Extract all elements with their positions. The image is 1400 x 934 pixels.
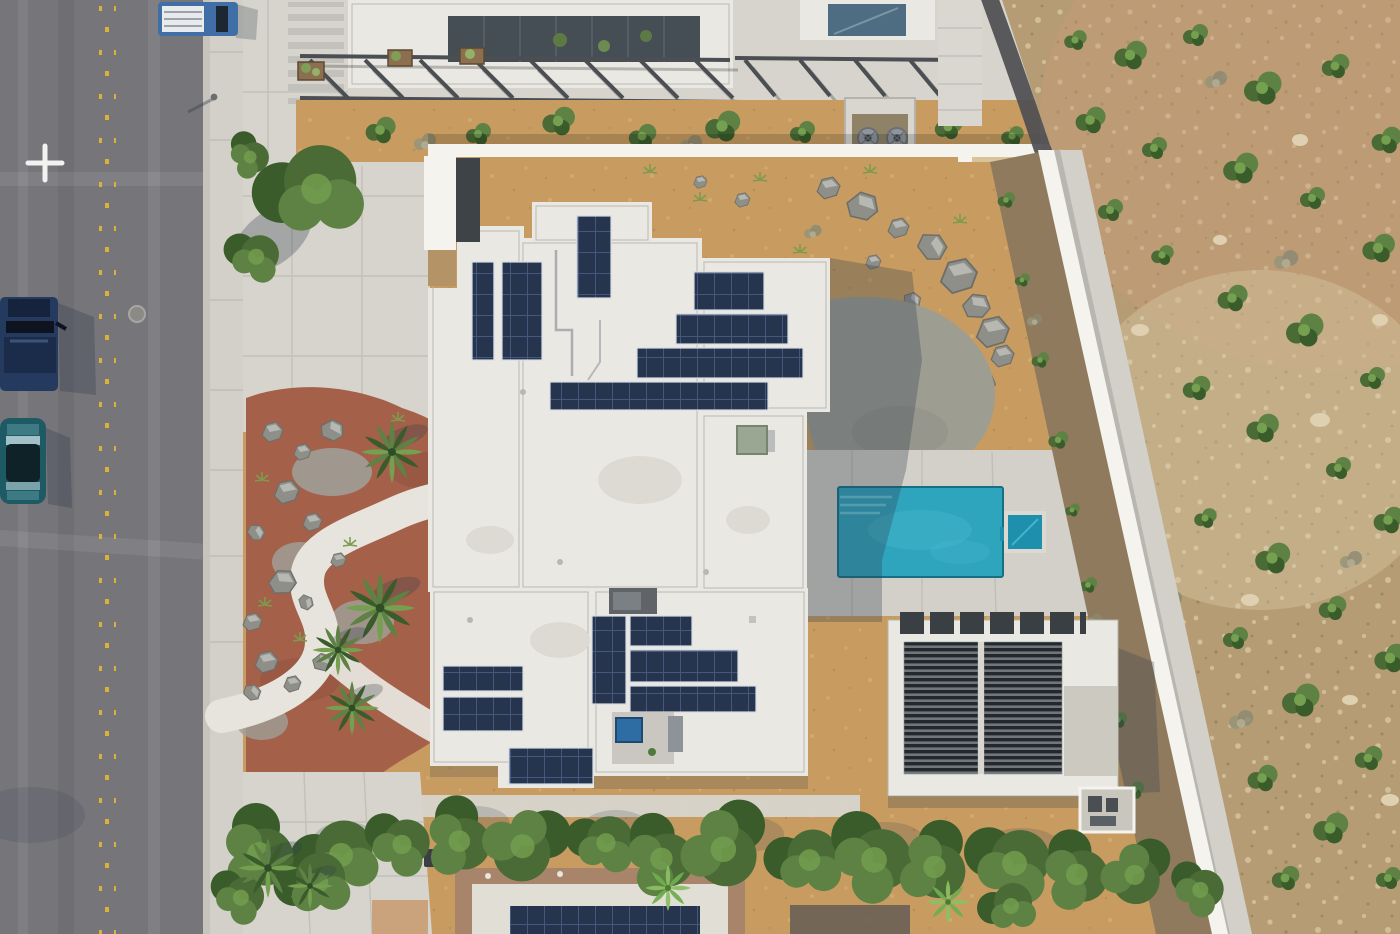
roof-vent [520,389,526,395]
curb [203,0,210,934]
solar-array [630,616,692,646]
solar-array [630,650,738,682]
solar-array [443,666,523,691]
solar-array [443,697,523,731]
interior-courtyard [612,712,683,764]
solar-array [550,382,768,410]
pool-equipment-enclosure [1080,788,1134,832]
solar-array [502,262,542,360]
courtyard-equipment [668,716,683,752]
work-truck [158,2,258,40]
slatted-panel [984,642,1062,774]
solar-array [577,216,611,298]
neighbor-patio [790,905,910,934]
lane-marking-yellow-dots [99,0,116,934]
roof-vent [749,616,756,623]
shade-pavilion [888,612,1118,808]
north-perimeter-wall [428,144,1050,157]
neighbor-roof-corner [372,900,428,934]
aerial-photo-stage [0,0,1400,934]
wood-gate [428,250,456,286]
solar-array [694,272,764,310]
roof-vent [557,559,563,565]
courtyard-skylight [616,718,642,742]
neighbor-solar-array [510,906,700,934]
slatted-panel [904,642,978,774]
solar-array [676,314,788,344]
shaded-entry-glass [456,158,480,242]
roof-vent [467,617,473,623]
courtyard-plant [648,748,656,756]
pavilion-shadow [1118,648,1160,794]
hilltop-step-walk [938,0,982,126]
glass-courtyard [448,16,700,62]
solar-array [592,616,626,704]
pavilion-concrete-bay [1064,686,1118,776]
manhole-cover [129,306,145,322]
north-building-2-roof [800,0,935,40]
solar-array [630,686,756,712]
solar-array [637,348,803,378]
ac-unit-green [737,426,767,454]
solar-array [509,748,593,784]
roof-vent [703,569,709,575]
entry-fin-wall [424,156,456,250]
pavilion-roof-fins [896,612,1086,634]
aerial-photo [0,0,1400,934]
north-wall-shadow [428,134,1050,144]
south-neighbor-roof [455,868,745,934]
north-building-roof [348,0,733,88]
solar-array [472,262,494,360]
